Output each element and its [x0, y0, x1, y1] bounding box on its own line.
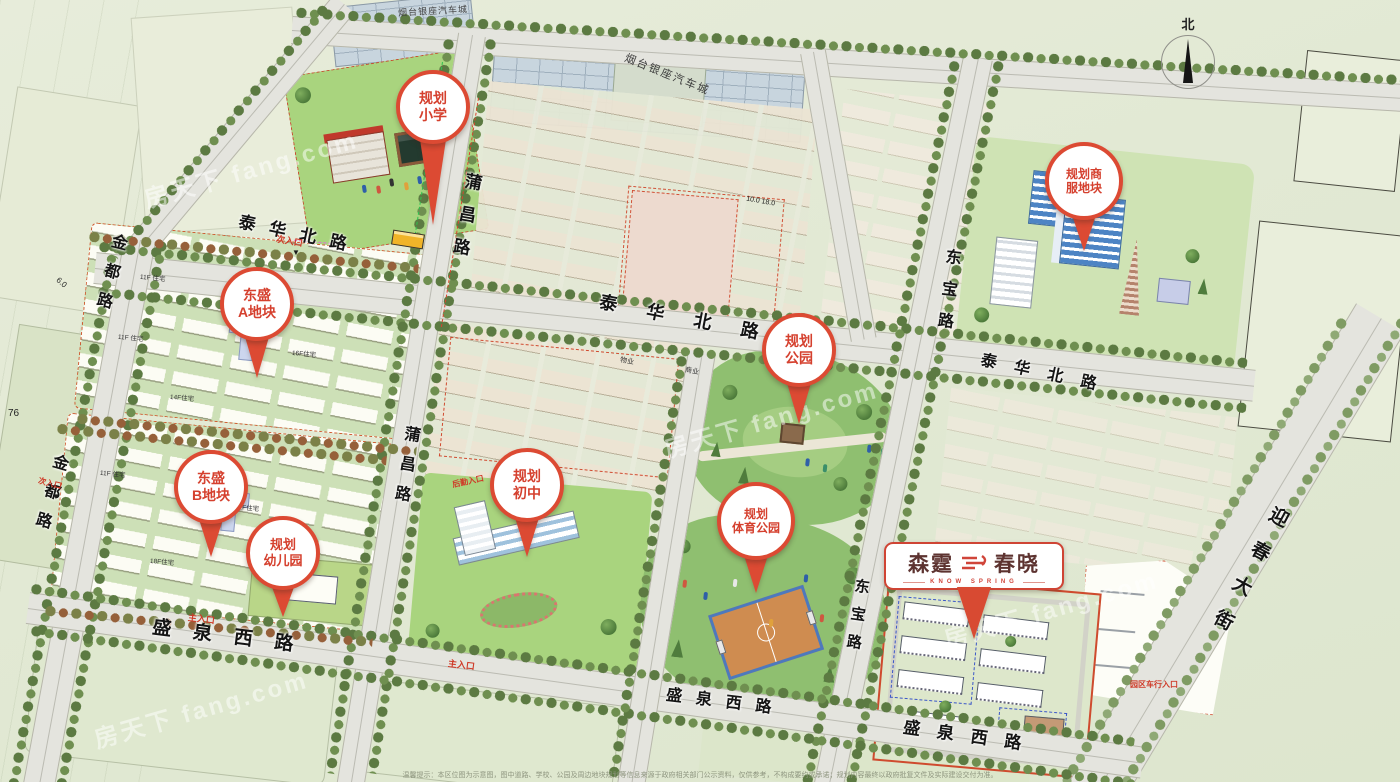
entrance-arrow-icon: ▼: [292, 248, 300, 257]
entrance-arrow-icon: ▼: [52, 492, 60, 501]
marker-label: 东盛: [243, 287, 271, 304]
marker-planned-primary-school[interactable]: 规划小学: [396, 70, 470, 225]
marker-label: 幼儿园: [263, 553, 302, 569]
north-label: 北: [1158, 14, 1218, 33]
logo-subtitle: KNOW SPRING: [930, 579, 1018, 585]
marker-planned-kindergarten[interactable]: 规划幼儿园: [246, 516, 320, 617]
students: [362, 185, 367, 194]
survey-coordinates-text: [1101, 590, 1145, 596]
entrance-label-vehicle: 园区车行入口: [1130, 679, 1178, 690]
marker-label: 初中: [513, 485, 541, 502]
marker-label: 公园: [785, 350, 813, 367]
logo-name-right: 春晓: [994, 548, 1040, 578]
athletes: [682, 580, 687, 588]
marker-label: 体育公园: [732, 521, 780, 535]
compass-circle: [1161, 35, 1215, 89]
location-planning-map: 泰华北路 泰华北路 泰华北路 蒲昌路 蒲昌路 金都路 金都路 东宝路 东宝路 迎…: [0, 0, 1400, 782]
marker-tail: [419, 133, 447, 225]
marker-label: 服地块: [1066, 181, 1102, 195]
entrance-arrow-icon: ▼: [204, 626, 212, 635]
fineprint-disclaimer: 温馨提示：本区位图为示意图，图中道路、学校、公园及周边地块规划等信息来源于政府相…: [0, 770, 1400, 780]
school-building: [326, 131, 390, 184]
north-needle-icon: [1183, 39, 1193, 83]
marker-label: 规划: [785, 333, 813, 350]
pavilion: [779, 422, 805, 444]
marker-label: B地块: [192, 487, 230, 504]
logo-pointer: [957, 587, 991, 639]
marker-label: 规划商: [1066, 167, 1102, 181]
marker-label: 规划: [419, 90, 447, 107]
dimension-label: 76: [8, 408, 19, 419]
marker-planned-junior-high[interactable]: 规划初中: [490, 448, 564, 557]
compass: 北: [1158, 14, 1218, 89]
marker-dongsheng-plot-a[interactable]: 东盛A地块: [220, 267, 294, 378]
basketball-court: [708, 585, 824, 681]
marker-label: 规划: [270, 537, 296, 553]
lattice-spire: [1119, 238, 1147, 316]
project-logo-badge[interactable]: 森霆 春晓 KNOW SPRING: [886, 542, 1062, 639]
office-tower-white: [989, 237, 1038, 309]
garden-oval: [478, 587, 560, 633]
marker-planned-sports-park[interactable]: 规划体育公园: [717, 482, 795, 593]
marker-label: 东盛: [197, 470, 225, 487]
survey-coordinates-text: [1095, 628, 1135, 633]
logo-glyph-icon: [959, 552, 989, 574]
marker-planned-commercial-plot[interactable]: 规划商服地块: [1045, 142, 1123, 251]
marker-label: A地块: [238, 304, 276, 321]
marker-dongsheng-plot-b[interactable]: 东盛B地块: [174, 450, 248, 557]
marker-planned-park[interactable]: 规划公园: [762, 313, 836, 424]
marker-label: 规划: [513, 468, 541, 485]
small-building: [1157, 278, 1191, 305]
marker-label: 小学: [419, 107, 447, 124]
logo-name-left: 森霆: [908, 548, 954, 578]
marker-label: 规划: [744, 507, 768, 521]
